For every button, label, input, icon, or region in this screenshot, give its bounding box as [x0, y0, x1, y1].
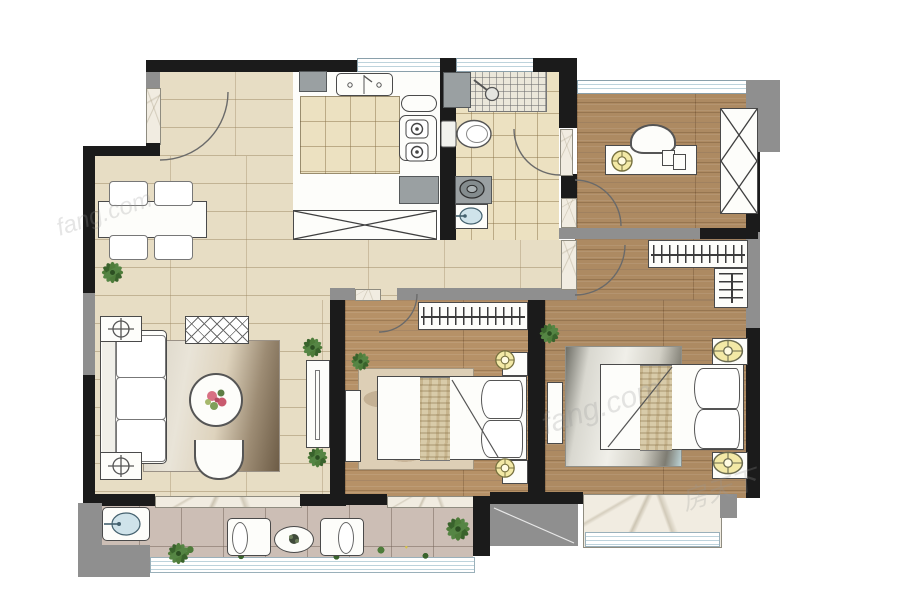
bath-basin: [455, 204, 488, 229]
wall-right-2: [746, 232, 760, 328]
dining-chair: [154, 235, 193, 260]
bench-ottoman: [185, 316, 249, 344]
master-closet-horizontal: [648, 240, 748, 268]
wall-bath-right-lower: [561, 174, 577, 200]
master-pillow: [694, 368, 740, 409]
wall-left-1: [83, 156, 95, 293]
tv-screen: [315, 370, 320, 440]
balcony-slider-threshold: [155, 496, 302, 508]
side-table-bottom: [100, 452, 142, 480]
sofa-cushion: [116, 377, 166, 420]
floor-plan-canvas: fang.com 房天下 fang.com: [0, 0, 900, 600]
wall-living-bottom-b: [300, 494, 346, 506]
entry-door-slab: [146, 88, 161, 145]
laundry-sink-counter: [102, 507, 150, 541]
floor-entry-hall: [160, 72, 293, 156]
balcony-oval-table: [274, 526, 314, 553]
round-coffee-table: [189, 373, 243, 427]
desk-books: [673, 154, 686, 170]
wall-bed2-left: [330, 300, 345, 498]
kitchen-small-sink: [299, 71, 327, 92]
wall-study-master-gray: [559, 228, 700, 239]
gas-stove: [399, 115, 437, 161]
wall-left-2: [83, 293, 95, 375]
master-bed-runner: [640, 365, 672, 451]
master-door-slab: [561, 240, 577, 290]
kitchen-window: [357, 58, 442, 72]
dining-table: [98, 201, 207, 238]
wall-right-3: [746, 328, 760, 498]
wall-living-bottom-a: [93, 494, 155, 506]
wall-study-corner: [563, 72, 577, 92]
bay-window-glass: [585, 532, 720, 547]
bed2-door-slab: [355, 289, 381, 301]
wall-bed2-master: [528, 300, 545, 498]
wall-left-3: [83, 375, 95, 505]
wall-bed2-top-a: [330, 288, 355, 300]
balcony-corner-platform: [78, 545, 150, 577]
dining-chair: [109, 181, 148, 206]
lounge-cushion-left: [232, 522, 248, 554]
kitchen-double-sink: [336, 73, 393, 96]
washing-machine: [455, 176, 492, 204]
bay-window-pillar: [720, 494, 737, 518]
wall-dining-bump: [83, 146, 160, 156]
bed2-runner: [420, 377, 450, 461]
kitchen-tray: [401, 95, 437, 112]
bed2-tv-console: [345, 390, 361, 462]
wall-study-master-black: [700, 228, 758, 239]
kitchen-appliance: [399, 176, 439, 204]
balcony-left-wall: [78, 503, 102, 545]
study-door-slab: [561, 198, 577, 228]
master-nightstand-top: [712, 338, 748, 365]
master-nightstand-bottom: [712, 452, 748, 479]
dining-chair: [154, 181, 193, 206]
shower-area: [468, 70, 547, 112]
equipment-platform: [490, 504, 578, 546]
bed2-nightstand-bottom: [502, 460, 528, 484]
wall-master-bottom: [490, 492, 583, 504]
bed2-nightstand-top: [502, 352, 528, 376]
sofa-back: [102, 332, 116, 462]
lounge-cushion-right: [338, 522, 354, 554]
bath-door-slab: [560, 129, 573, 176]
study-x-wardrobe: [720, 108, 758, 214]
master-pillow: [694, 409, 740, 449]
bathroom-window: [456, 58, 535, 72]
bed2-pillow: [481, 420, 523, 458]
bath-cabinet: [443, 72, 471, 108]
x-storage-cabinet: [293, 210, 437, 240]
master-tv-console: [547, 382, 563, 444]
wall-bed2-bottom: [346, 494, 387, 505]
dining-chair: [109, 235, 148, 260]
wall-entry-cap: [146, 72, 160, 88]
bed2-pillow: [481, 380, 523, 419]
side-table-top: [100, 316, 142, 342]
bed2-hanger-wardrobe: [418, 302, 528, 330]
bed2-window-sill: [387, 496, 475, 508]
wall-bath-right-upper: [559, 58, 577, 128]
wall-balcony-end: [473, 496, 490, 556]
study-window: [577, 80, 750, 94]
wall-bed2-top-b: [397, 288, 528, 300]
floor-kitchen-tiles: [300, 96, 400, 174]
master-closet-vertical: [714, 268, 748, 308]
